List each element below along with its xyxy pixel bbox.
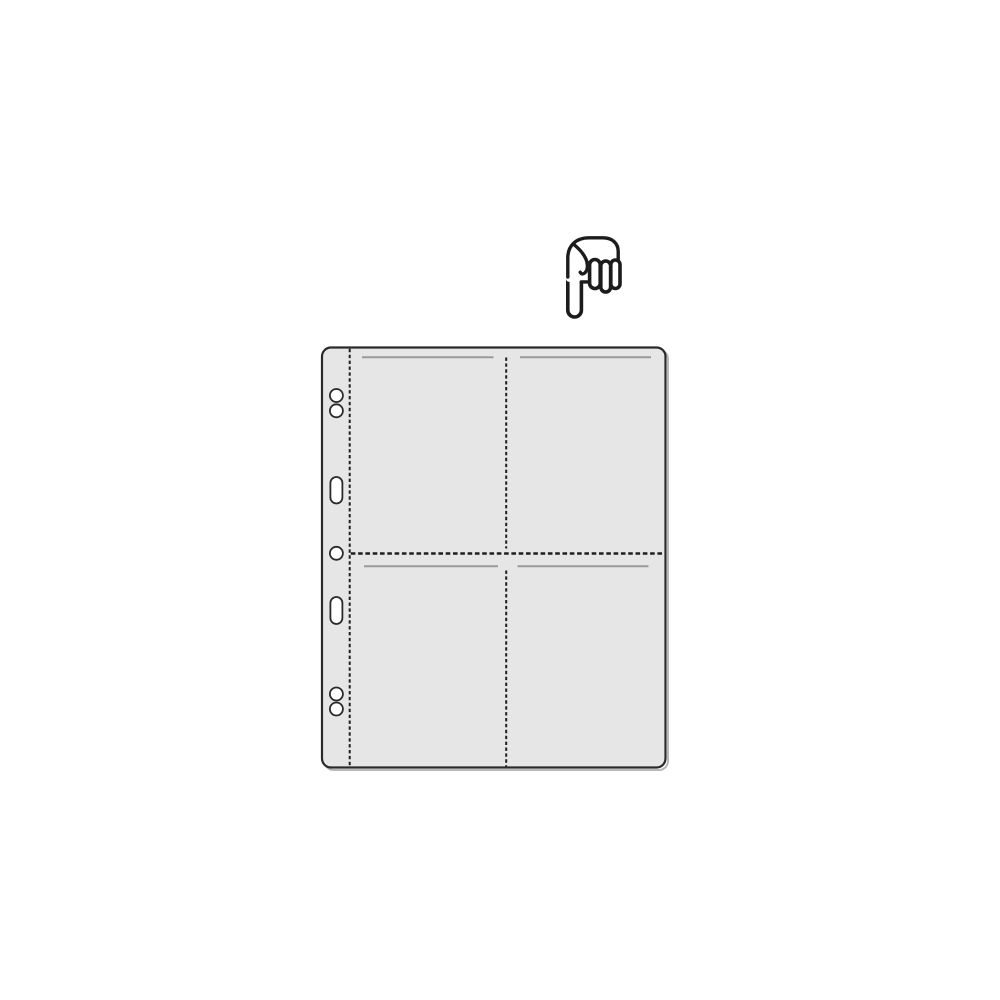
product-illustration	[0, 0, 1000, 1000]
binder-hole-round-2	[330, 404, 343, 417]
illustration-canvas	[0, 0, 1000, 1000]
hand-knuckle-3	[611, 260, 620, 289]
binder-hole-round-4	[330, 688, 343, 701]
binder-hole-round-1	[330, 389, 343, 402]
binder-hole-round-5	[330, 703, 343, 716]
binder-hole-slot-1	[330, 477, 342, 504]
hand-knuckle-1	[590, 260, 601, 289]
page-body	[322, 348, 666, 768]
pointing-down-hand-icon	[566, 236, 620, 317]
pocket-page	[322, 348, 668, 771]
binder-hole-round-3	[330, 547, 343, 560]
binder-hole-slot-2	[330, 597, 342, 624]
